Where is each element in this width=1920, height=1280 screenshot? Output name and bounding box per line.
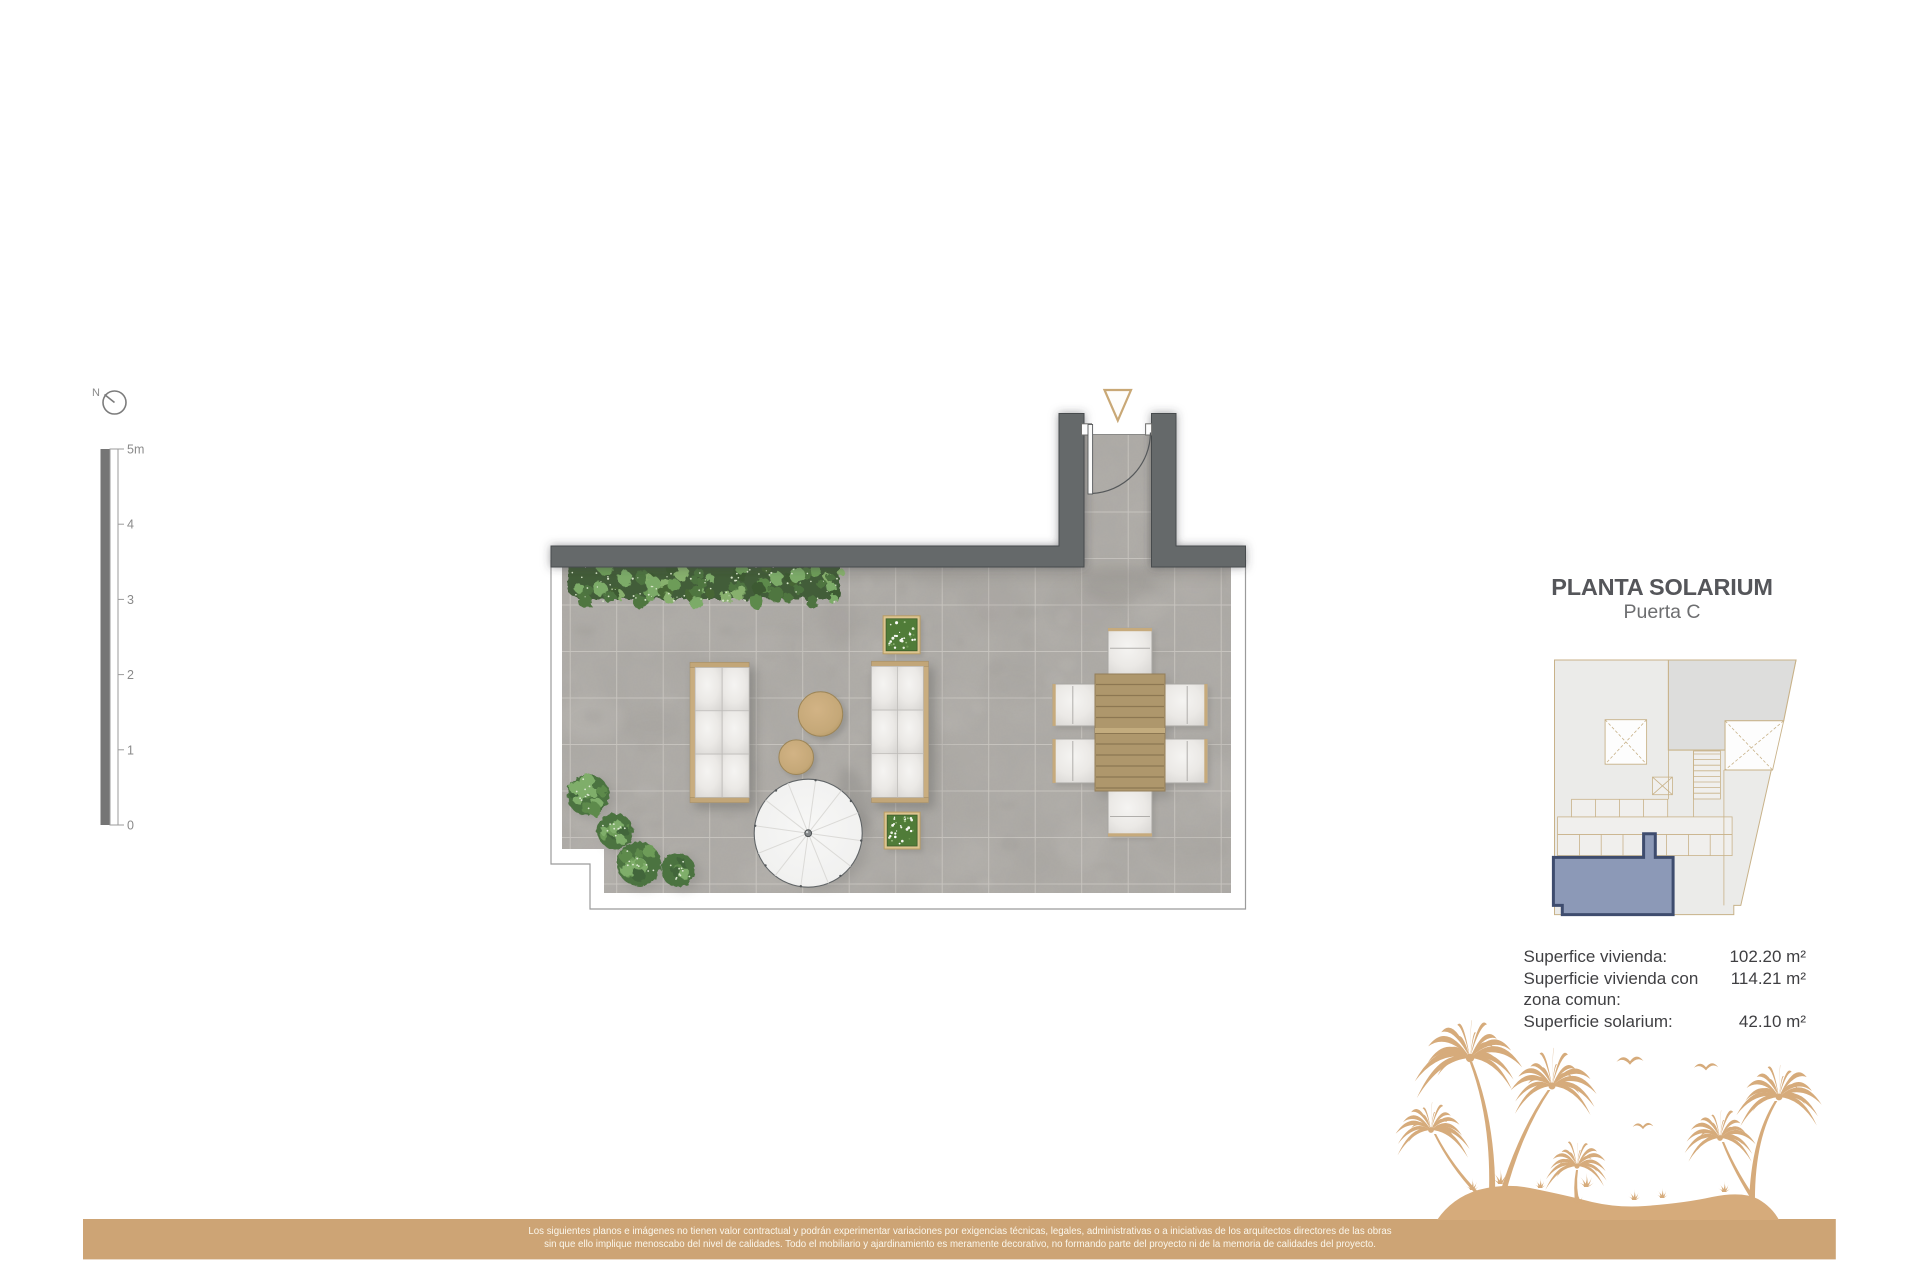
svg-text:2: 2 bbox=[127, 668, 134, 682]
svg-text:0: 0 bbox=[127, 819, 134, 833]
svg-text:5m: 5m bbox=[127, 443, 144, 457]
svg-text:3: 3 bbox=[127, 593, 134, 607]
svg-text:4: 4 bbox=[127, 518, 134, 532]
svg-text:N: N bbox=[92, 387, 100, 399]
svg-text:1: 1 bbox=[127, 743, 134, 757]
